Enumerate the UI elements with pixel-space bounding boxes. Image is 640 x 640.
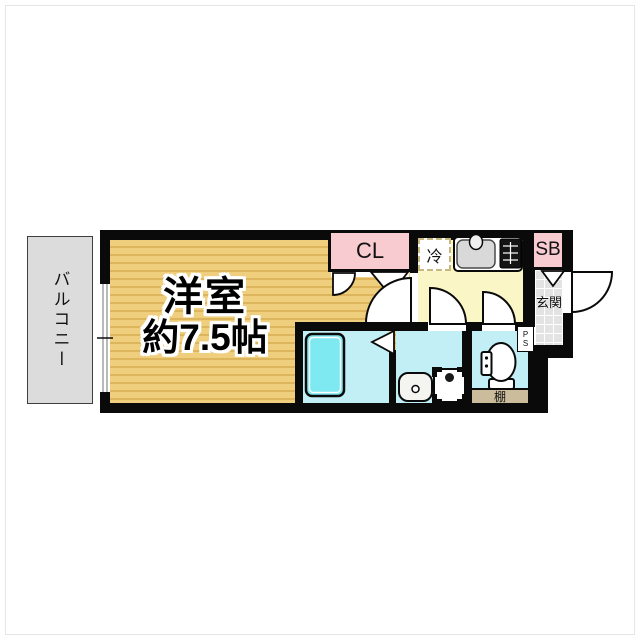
floorplan-page: { "floorplan": { "rooms": { "balcony": {… — [0, 0, 640, 640]
main-room-label-line1: 洋室 — [90, 276, 320, 318]
fridge-space: 冷 — [418, 238, 451, 271]
door-opening — [428, 322, 466, 331]
shoebox-sb: SB — [531, 230, 565, 270]
pipe-space: P S — [517, 326, 534, 352]
shelf: 棚 — [472, 388, 528, 403]
balcony: バルコニー — [27, 236, 93, 404]
shoebox-label: SB — [535, 239, 560, 261]
main-room-label: 洋室 約7.5帖 — [90, 276, 320, 358]
kitchen-counter — [453, 236, 523, 272]
main-room-label-line2: 約7.5帖 — [90, 318, 320, 358]
door-opening — [482, 322, 515, 331]
entrance-label: 玄関 — [534, 292, 564, 311]
balcony-label: バルコニー — [48, 270, 73, 370]
closet-cl: CL — [328, 230, 412, 272]
fridge-label: 冷 — [426, 243, 442, 267]
closet-opening — [331, 272, 409, 277]
pipe-space-label-s: S — [523, 339, 528, 348]
closet-label: CL — [356, 238, 384, 264]
shelf-label: 棚 — [494, 388, 506, 405]
wall — [100, 403, 548, 413]
pipe-space-label-p: P — [523, 330, 528, 339]
wall — [389, 350, 396, 413]
washroom — [396, 331, 462, 403]
wall — [528, 345, 548, 413]
wall — [462, 322, 472, 413]
